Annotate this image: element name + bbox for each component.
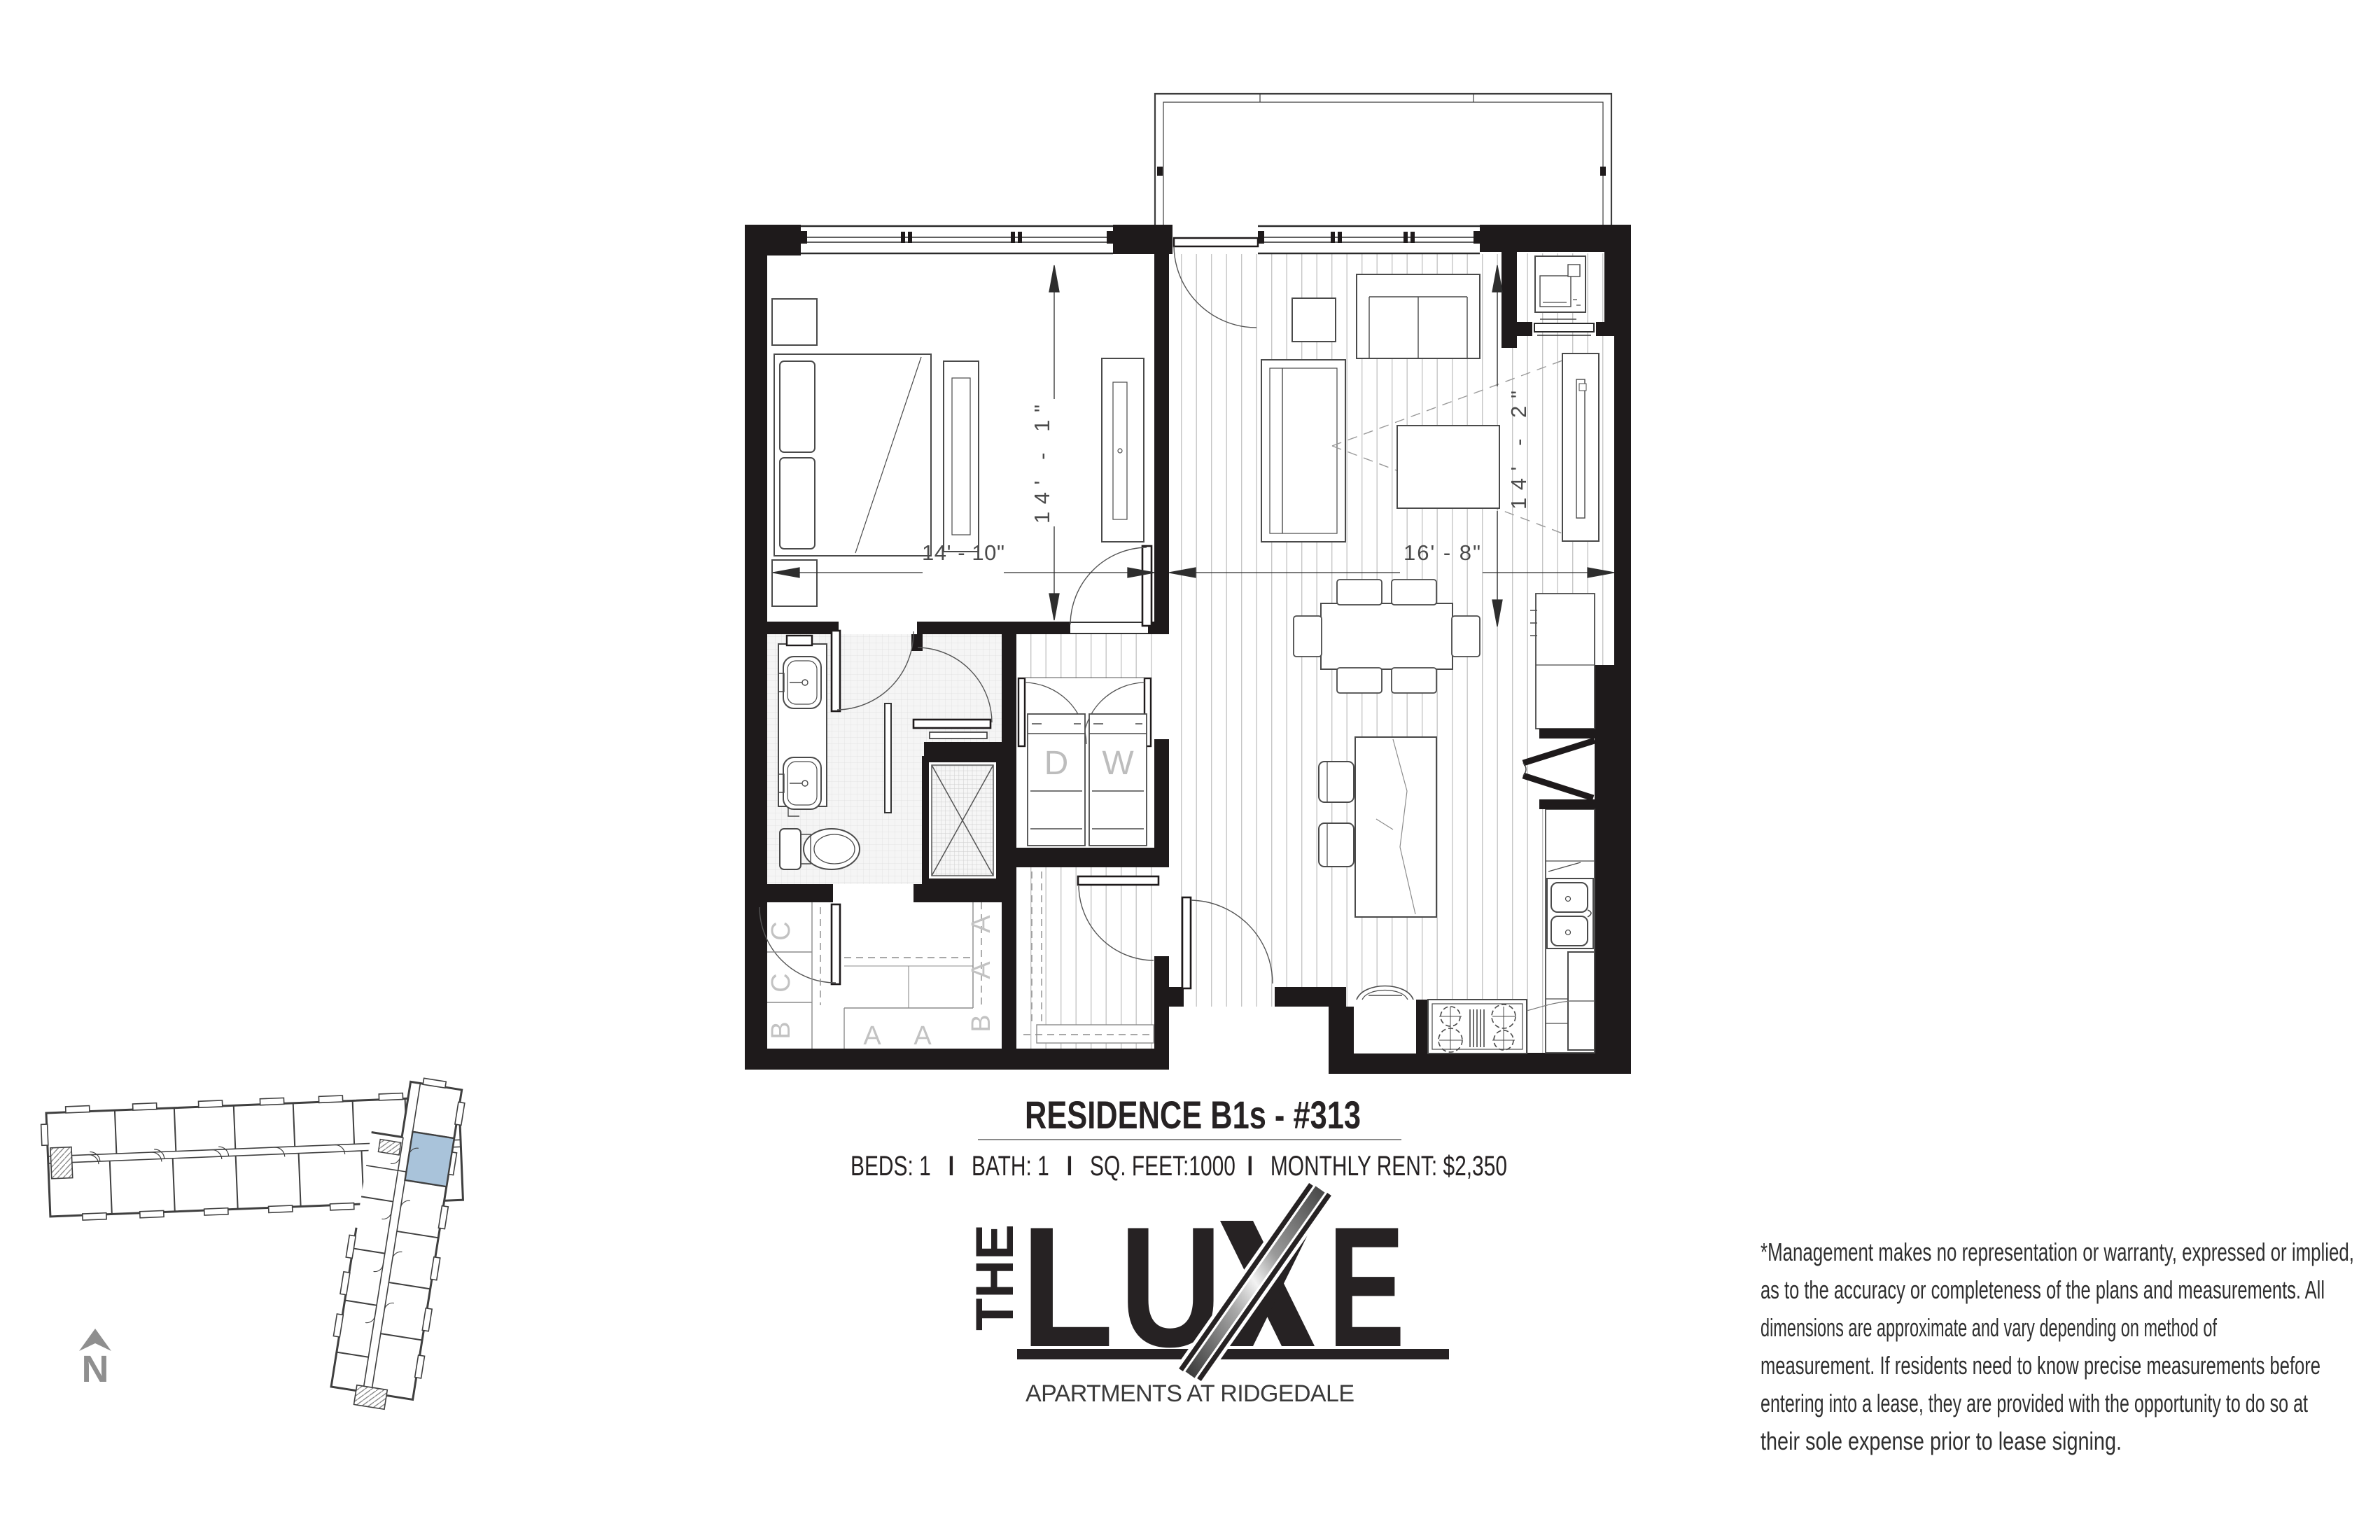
svg-text:14' - 10": 14' - 10" — [922, 540, 1004, 565]
svg-text:B: B — [766, 1021, 796, 1039]
svg-text:APARTMENTS AT RIDGEDALE: APARTMENTS AT RIDGEDALE — [1025, 1380, 1354, 1407]
svg-text:B: B — [967, 1014, 996, 1032]
svg-text:entering into a lease, they ar: entering into a lease, they are provided… — [1760, 1389, 2308, 1417]
svg-text:A: A — [967, 961, 996, 979]
svg-text:as to the accuracy or complete: as to the accuracy or completeness of th… — [1760, 1275, 2325, 1304]
svg-text:*Management makes no represent: *Management makes no representation or w… — [1760, 1238, 2354, 1266]
svg-text:A: A — [967, 915, 996, 933]
svg-text:C: C — [766, 921, 796, 940]
svg-text:THE: THE — [965, 1224, 1025, 1331]
svg-text:A: A — [863, 1021, 881, 1051]
svg-text:D: D — [1044, 745, 1069, 782]
svg-text:BEDS: 1 I BATH: 1 I SQ: BEDS: 1 I BATH: 1 I SQ. FEET:1000 I MONT… — [850, 1151, 1507, 1182]
svg-text:RESIDENCE B1s - #313: RESIDENCE B1s - #313 — [1025, 1093, 1361, 1137]
svg-text:measurement. If residents need: measurement. If residents need to know p… — [1760, 1351, 2320, 1380]
svg-text:W: W — [1102, 745, 1134, 782]
svg-text:their sole expense prior to le: their sole expense prior to lease signin… — [1760, 1427, 2122, 1455]
svg-text:C: C — [766, 973, 796, 992]
svg-text:A: A — [913, 1021, 932, 1051]
svg-text:dimensions are approximate and: dimensions are approximate and vary depe… — [1760, 1313, 2218, 1342]
svg-text:N: N — [82, 1348, 109, 1390]
